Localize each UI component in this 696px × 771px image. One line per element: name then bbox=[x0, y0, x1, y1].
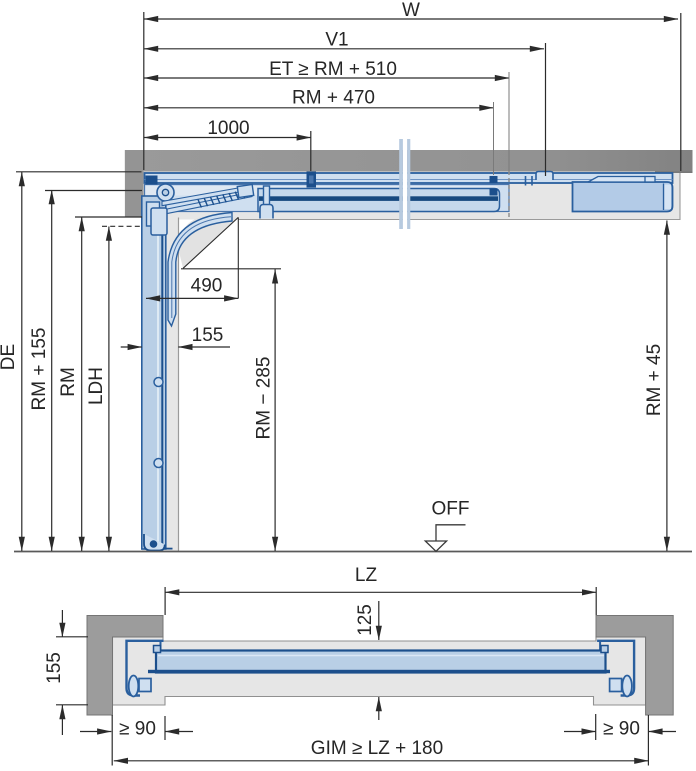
svg-text:GIM ≥ LZ + 180: GIM ≥ LZ + 180 bbox=[311, 738, 443, 759]
svg-text:155: 155 bbox=[44, 652, 65, 684]
svg-text:490: 490 bbox=[191, 276, 223, 297]
svg-text:155: 155 bbox=[192, 325, 224, 346]
svg-text:ET ≥ RM + 510: ET ≥ RM + 510 bbox=[269, 59, 397, 80]
svg-text:RM − 285: RM − 285 bbox=[254, 357, 275, 440]
svg-text:125: 125 bbox=[355, 604, 376, 636]
svg-text:LZ: LZ bbox=[355, 565, 378, 586]
svg-text:RM: RM bbox=[58, 367, 79, 397]
svg-text:RM + 155: RM + 155 bbox=[29, 328, 50, 411]
svg-text:RM + 470: RM + 470 bbox=[292, 88, 375, 109]
svg-text:OFF: OFF bbox=[432, 499, 470, 520]
svg-text:1000: 1000 bbox=[207, 118, 249, 139]
svg-text:DE: DE bbox=[0, 344, 19, 370]
svg-text:V1: V1 bbox=[325, 30, 348, 51]
svg-text:≥ 90: ≥ 90 bbox=[603, 719, 640, 740]
svg-text:LDH: LDH bbox=[86, 367, 107, 405]
svg-text:W: W bbox=[402, 0, 420, 21]
svg-text:≥ 90: ≥ 90 bbox=[119, 719, 156, 740]
svg-text:RM + 45: RM + 45 bbox=[644, 344, 665, 416]
